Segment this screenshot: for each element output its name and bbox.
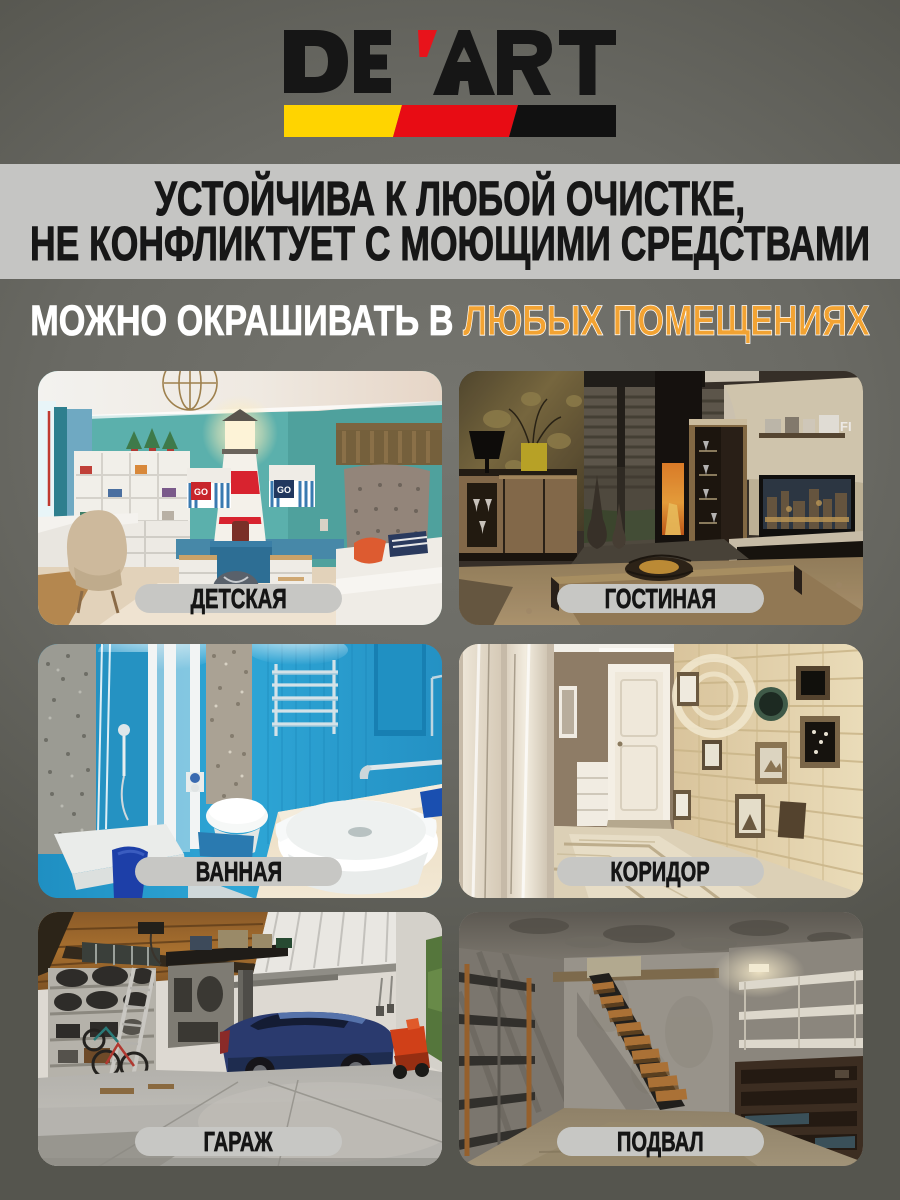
- svg-text:GO: GO: [194, 487, 208, 497]
- svg-text:GO: GO: [277, 485, 291, 495]
